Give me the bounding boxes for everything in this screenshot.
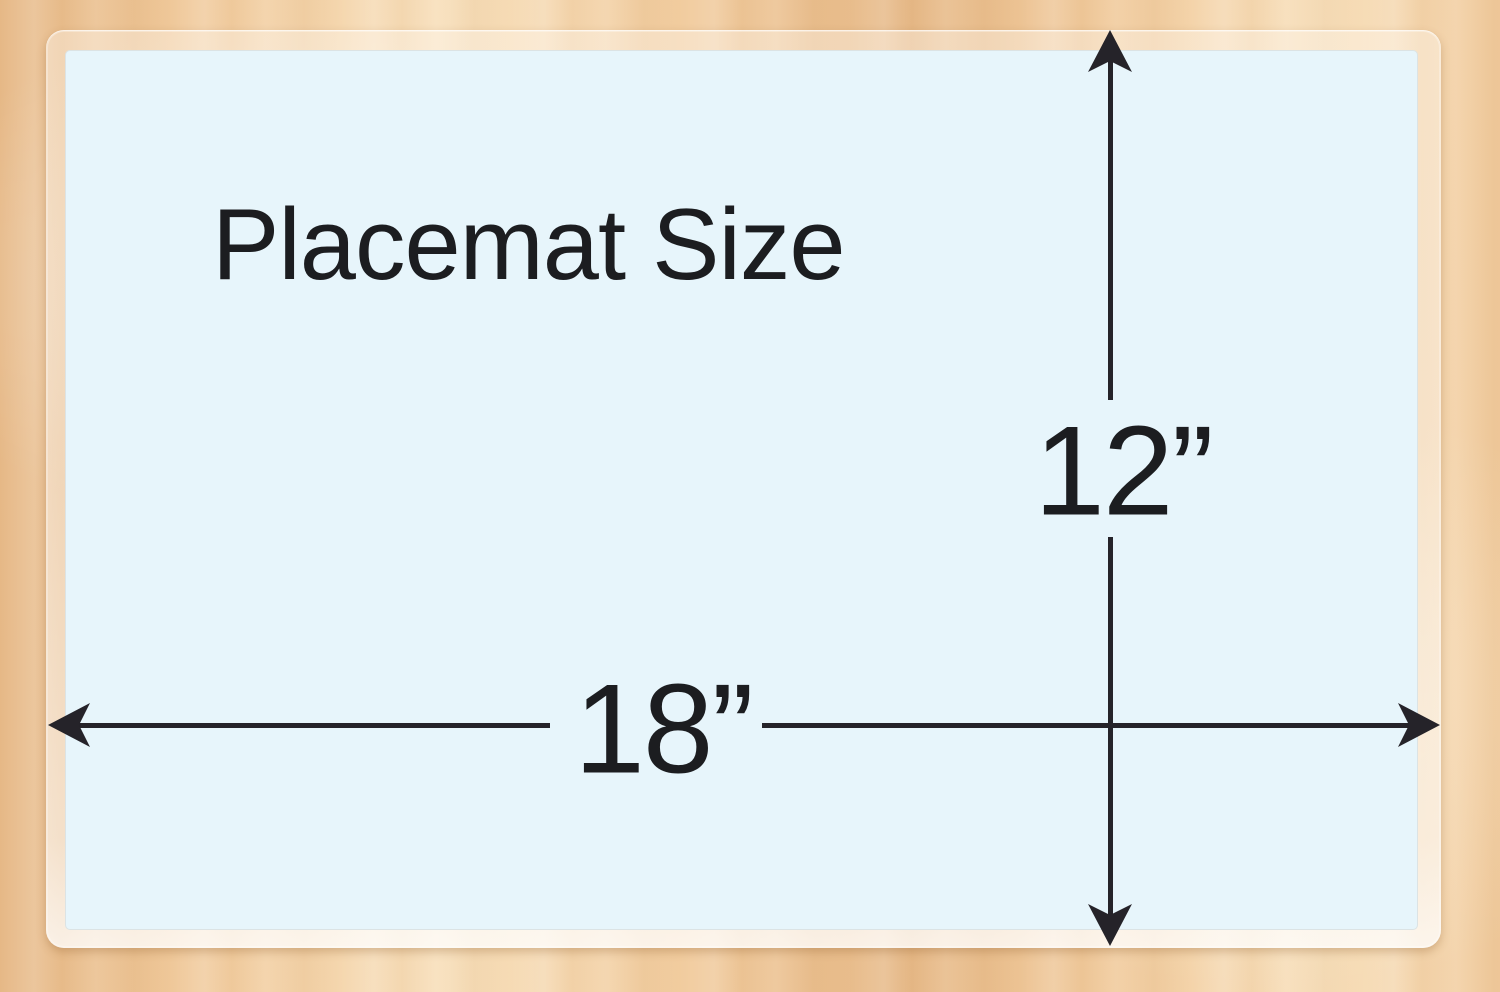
width-dimension-line-left-segment	[60, 723, 550, 728]
arrow-right-icon	[1398, 703, 1440, 747]
arrow-left-icon	[48, 703, 90, 747]
placemat	[46, 30, 1441, 948]
arrow-up-icon	[1088, 30, 1132, 72]
height-dimension-line-top-segment	[1108, 42, 1113, 400]
width-dimension-label: 18”	[574, 666, 752, 793]
wood-table-background: Placemat Size 18” 12”	[0, 0, 1500, 992]
height-dimension-line-bottom-segment	[1108, 537, 1113, 934]
height-dimension-label: 12”	[1034, 408, 1212, 535]
arrow-down-icon	[1088, 904, 1132, 946]
width-dimension-line-right-segment	[762, 723, 1426, 728]
placemat-title: Placemat Size	[212, 195, 845, 296]
